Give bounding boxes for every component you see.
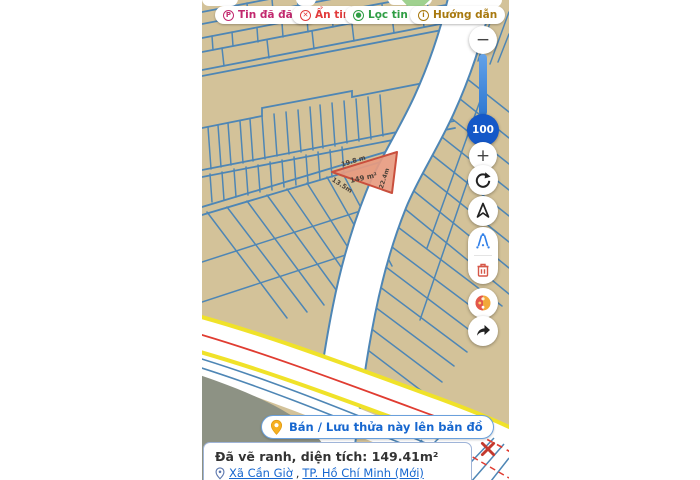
share-button[interactable] [468,316,498,346]
location-pin-icon [214,467,226,480]
refresh-icon [474,171,492,189]
map-viewport[interactable]: 19.8 m 149 m² 13.5m 22.4m [202,0,509,480]
close-panel-button[interactable] [479,440,497,458]
filter-listings-icon: ● [353,10,364,21]
cadastral-map[interactable]: 19.8 m 149 m² 13.5m 22.4m [202,0,509,480]
share-arrow-icon [474,322,492,340]
measure-tool-button[interactable] [468,227,498,255]
zoom-slider[interactable] [479,54,487,116]
map-style-button[interactable] [468,288,498,318]
parcel-info-title: Đã vẽ ranh, diện tích: 149.41m² [204,443,471,464]
refresh-button[interactable] [468,165,498,195]
hide-listings-icon: ✕ [300,10,311,21]
sell-save-parcel-button[interactable]: Bán / Lưu thửa này lên bản đồ [261,415,494,439]
plus-icon: + [476,148,490,165]
guide-button[interactable]: i Hướng dẫn [410,6,505,24]
draw-tools-group [468,227,498,284]
zoom-level-value: 100 [472,124,494,136]
app-screen: 19.8 m 149 m² 13.5m 22.4m P Tin đã đăng … [0,0,700,480]
palette-icon [474,294,492,312]
minus-icon: − [476,32,490,49]
guide-icon: i [418,10,429,21]
drawn-parcel-info-panel: Đã vẽ ranh, diện tích: 149.41m² Xã Cần G… [203,442,472,480]
delete-drawing-button[interactable] [468,256,498,284]
location-link-city[interactable]: TP. Hồ Chí Minh (Mới) [302,466,423,480]
location-separator: , [296,466,300,480]
compass-measure-icon [474,232,492,250]
filter-listings-label: Lọc tin [368,9,408,21]
guide-label: Hướng dẫn [433,9,497,21]
location-link-commune[interactable]: Xã Cần Giờ [229,466,293,480]
trash-icon [474,261,492,279]
close-icon [479,440,497,458]
navigation-arrow-icon [474,202,492,220]
sell-save-parcel-label: Bán / Lưu thửa này lên bản đồ [289,420,483,434]
posted-listings-icon: P [223,10,234,21]
locate-me-button[interactable] [468,196,498,226]
zoom-out-button[interactable]: − [469,26,497,54]
map-pin-icon [269,419,284,436]
